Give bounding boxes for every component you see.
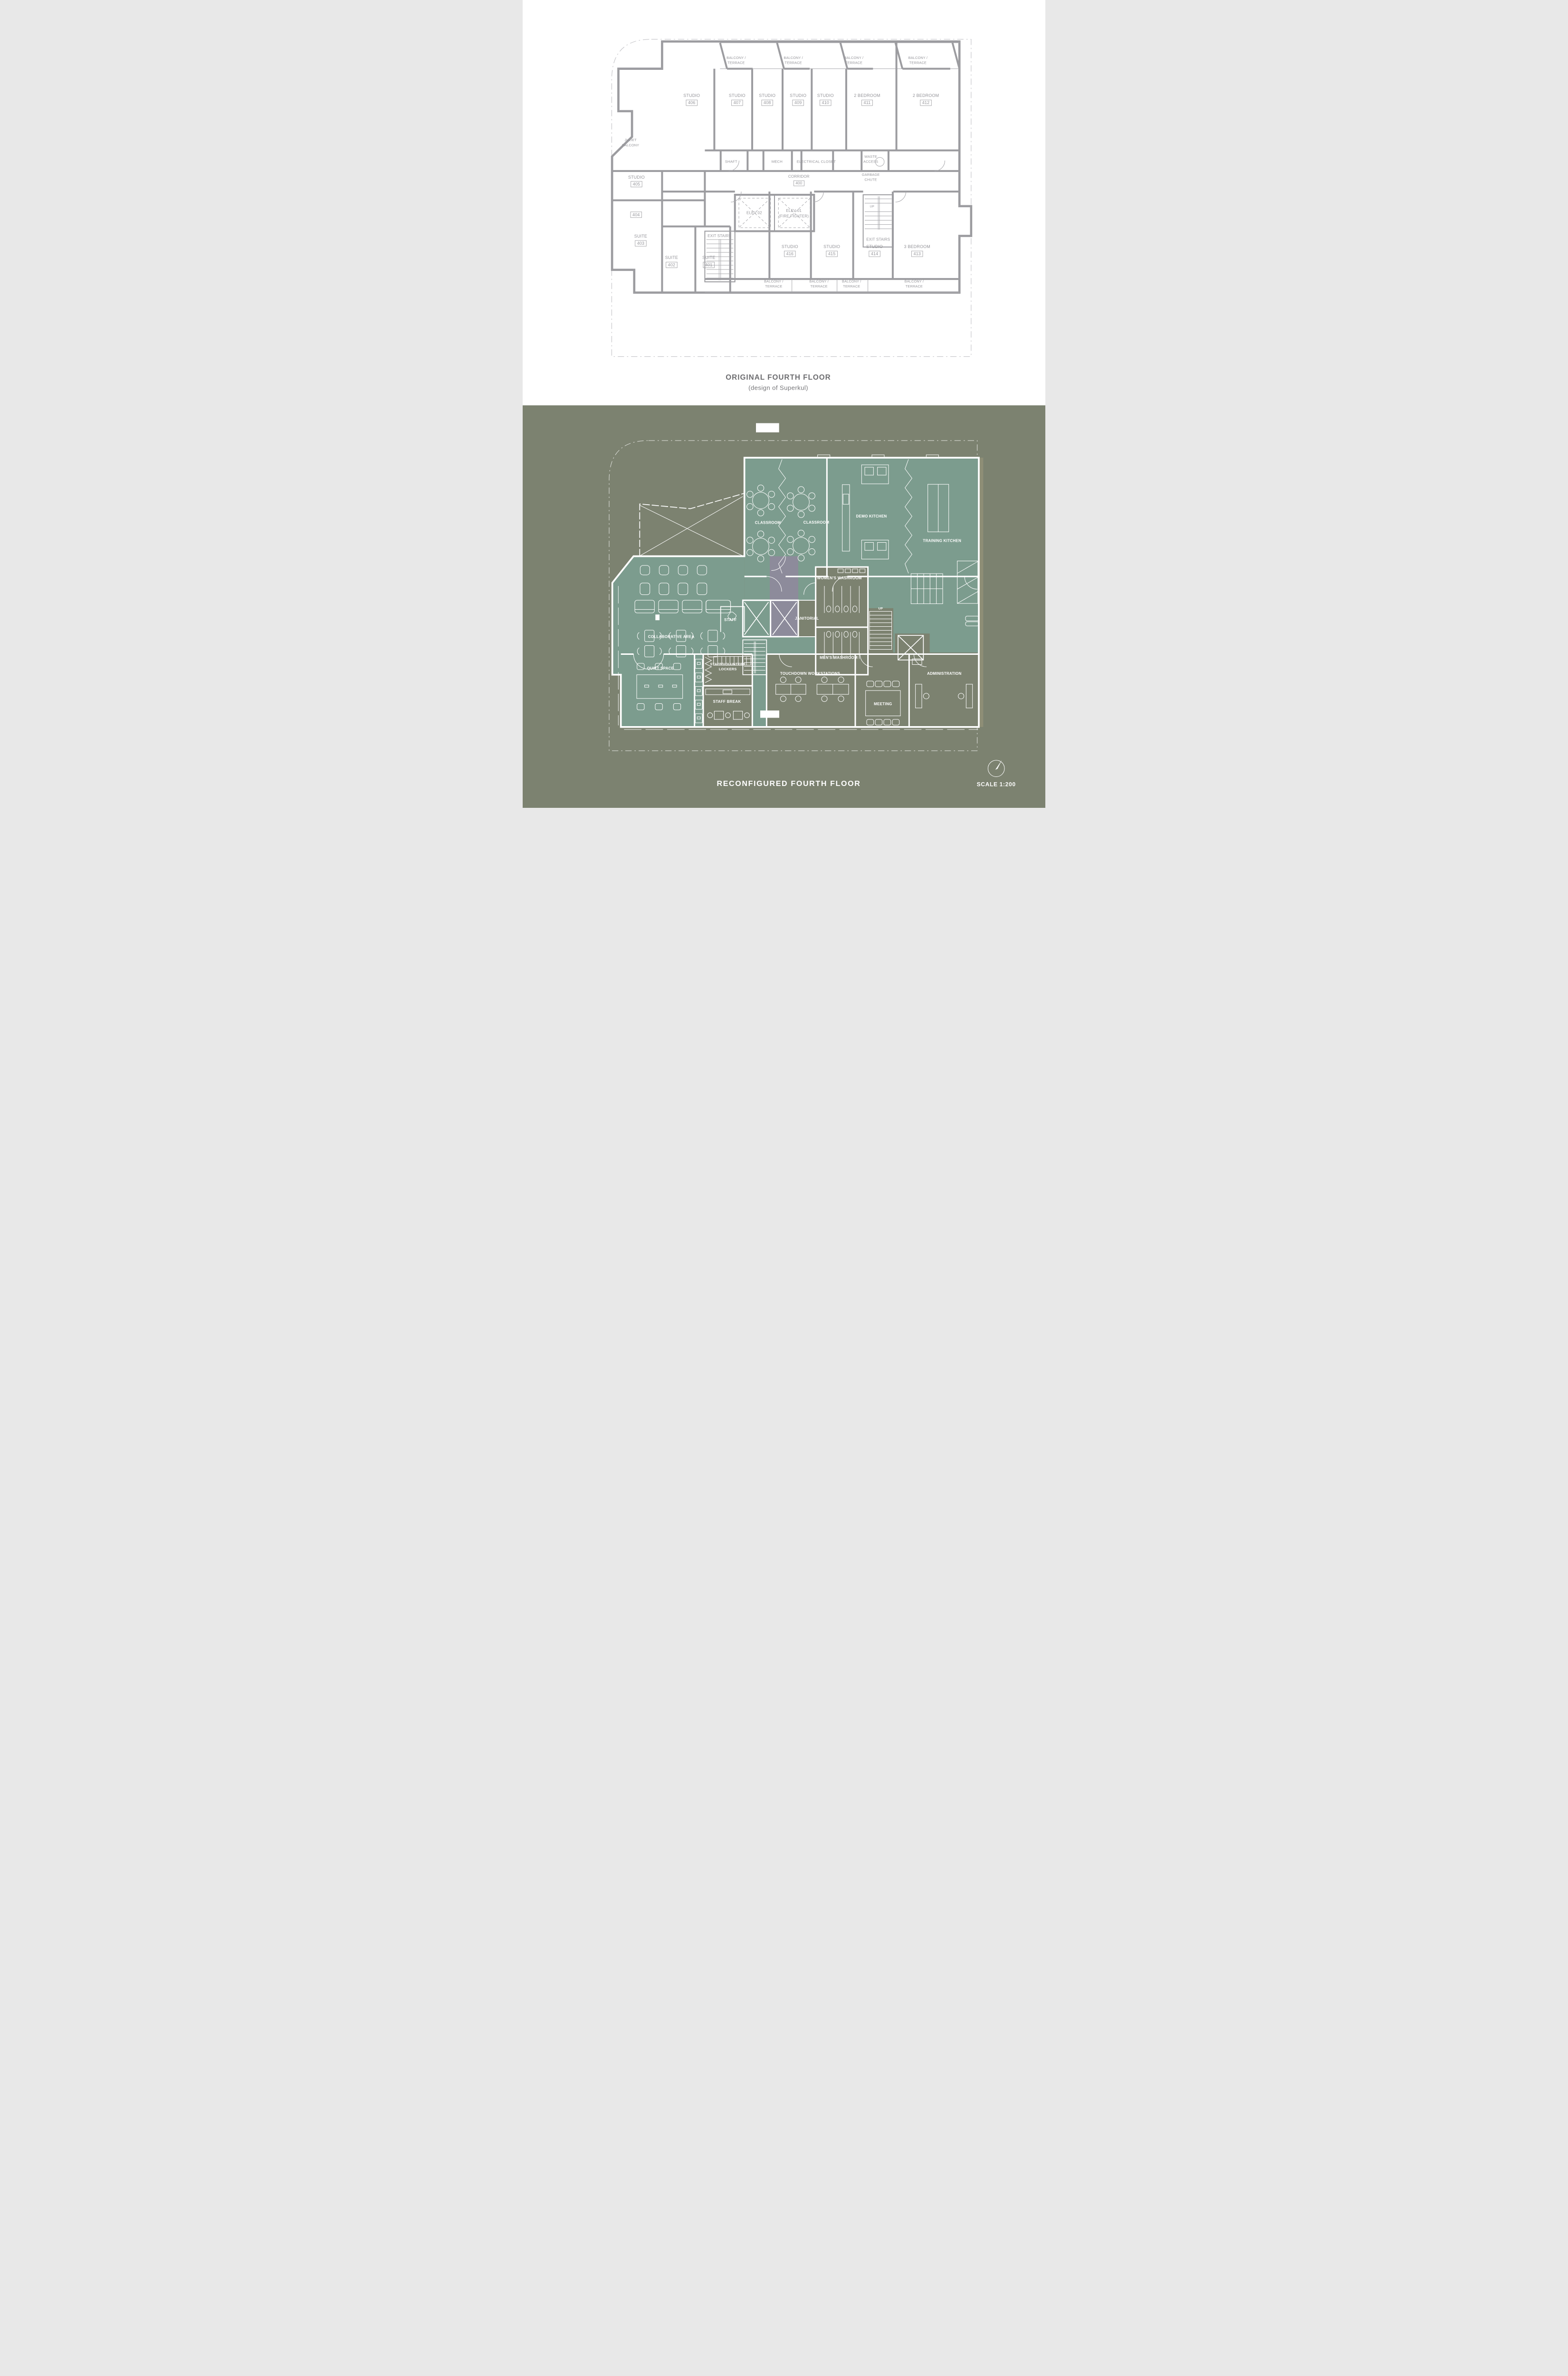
- room-label: 410: [822, 100, 830, 105]
- room-label: STAFF: [724, 618, 737, 622]
- collab-podium: [655, 614, 660, 620]
- room-label: UP: [870, 205, 874, 208]
- room-label: TRAINING KITCHEN: [923, 539, 961, 543]
- room-label: BALCONY /TERRACE: [784, 56, 803, 65]
- original-plan-caption: ORIGINAL FOURTH FLOOR: [726, 374, 831, 382]
- original-floor-section: STUDIO406STUDIO407STUDIO408STUDIO409STUD…: [523, 0, 1045, 405]
- room-label: STUDIO: [683, 93, 700, 98]
- room-label: 412: [922, 100, 930, 105]
- original-plan-subcaption: (design of Superkul): [748, 384, 808, 391]
- room-label: STAFF BREAK: [713, 699, 741, 704]
- exterior-tab-top: [756, 423, 779, 432]
- room-label: MECH: [772, 160, 783, 164]
- elevator-lobby-purple: [770, 556, 798, 637]
- room-label: EXIT STAIRS: [866, 237, 890, 241]
- room-label: 414: [871, 251, 878, 256]
- room-label: 2 BEDROOM: [913, 93, 939, 98]
- reconfigured-floor-section: CLASSROOMCLASSROOMDEMO KITCHENTRAINING K…: [523, 405, 1045, 808]
- room-label: SUITE: [634, 234, 647, 239]
- room-label: STUDIO: [759, 93, 775, 98]
- room-label: 402: [668, 262, 676, 267]
- room-label: 408: [764, 100, 771, 105]
- property-line: [612, 39, 971, 357]
- room-label: 401: [705, 262, 713, 267]
- room-label: CLASSROOM: [803, 520, 829, 525]
- exterior-balcony-strip: [980, 458, 983, 727]
- room-label: BALCONY /TERRACE: [844, 56, 864, 65]
- original-floor-plan: STUDIO406STUDIO407STUDIO408STUDIO409STUD…: [523, 0, 1045, 405]
- room-label: JANITORIAL: [795, 616, 819, 621]
- room-label: BALCONY /TERRACE: [842, 279, 861, 288]
- room-label: WASTEACCESS: [863, 154, 878, 164]
- reconfigured-floor-plan: CLASSROOMCLASSROOMDEMO KITCHENTRAINING K…: [523, 405, 1045, 808]
- room-label: 411: [864, 100, 871, 105]
- room-label: JULIETBALCONY: [622, 138, 639, 147]
- room-label: 400: [795, 181, 802, 185]
- room-label: SUITE: [702, 255, 715, 260]
- room-label: 405: [633, 182, 641, 187]
- room-label: BALCONY /TERRACE: [727, 56, 746, 65]
- room-label: MEN'S WASHROOM: [820, 656, 858, 660]
- exterior-tab-bottom: [760, 710, 779, 718]
- room-label: 415: [828, 251, 836, 256]
- room-label: 406: [688, 100, 696, 105]
- room-label: WOMEN'S WASHROOM: [817, 576, 862, 580]
- room-label: SUITE: [665, 255, 678, 260]
- room-label: 3 BEDROOM: [904, 244, 930, 249]
- room-label: BALCONY /TERRACE: [908, 56, 928, 65]
- room-label: UP: [878, 607, 883, 611]
- room-label: 416: [786, 251, 794, 256]
- room-label: 407: [734, 100, 741, 105]
- room-label: DEMO KITCHEN: [856, 514, 887, 518]
- room-label: MEETING: [874, 702, 892, 706]
- room-label: 413: [913, 251, 921, 256]
- original-plan-labels: STUDIO406STUDIO407STUDIO408STUDIO409STUD…: [622, 56, 939, 288]
- room-label: STUDIO: [729, 93, 746, 98]
- room-label: ADMINISTRATION: [927, 671, 961, 676]
- room-label: CORRIDOR: [788, 174, 810, 179]
- room-label: STUDIO: [817, 93, 834, 98]
- room-label: GARBAGECHUTE: [862, 172, 880, 182]
- scale-label: SCALE 1:200: [977, 781, 1016, 788]
- room-label: COLLABORATIVE AREA: [648, 635, 695, 639]
- room-label: STUDIO: [628, 175, 645, 180]
- reconfigured-plan-caption: RECONFIGURED FOURTH FLOOR: [717, 780, 861, 788]
- room-label: SHAFT: [725, 160, 737, 164]
- room-label: ELEV 02: [746, 211, 762, 215]
- room-label: STUDIO: [823, 244, 840, 249]
- room-label: QUIET SPACE: [647, 666, 674, 671]
- room-label: 404: [632, 212, 640, 217]
- room-label: BALCONY /TERRACE: [905, 279, 924, 288]
- room-label: 403: [637, 241, 645, 246]
- room-label: STUDIO: [790, 93, 806, 98]
- room-label: BALCONY /TERRACE: [809, 279, 829, 288]
- room-label: CLASSROOM: [755, 521, 781, 525]
- room-label: STUDIO: [782, 244, 798, 249]
- room-label: ELECTRICAL CLOSET: [797, 160, 836, 164]
- room-label: BALCONY /TERRACE: [764, 279, 784, 288]
- room-label: EXIT STAIRS: [708, 234, 731, 238]
- room-label: TOUCHDOWN WORKSTATIONS: [780, 671, 841, 676]
- room-label: STUDIO: [866, 244, 883, 249]
- room-label: 2 BEDROOM: [854, 93, 880, 98]
- floor-plan-comparison-page: STUDIO406STUDIO407STUDIO408STUDIO409STUD…: [523, 0, 1045, 808]
- room-label: 409: [794, 100, 802, 105]
